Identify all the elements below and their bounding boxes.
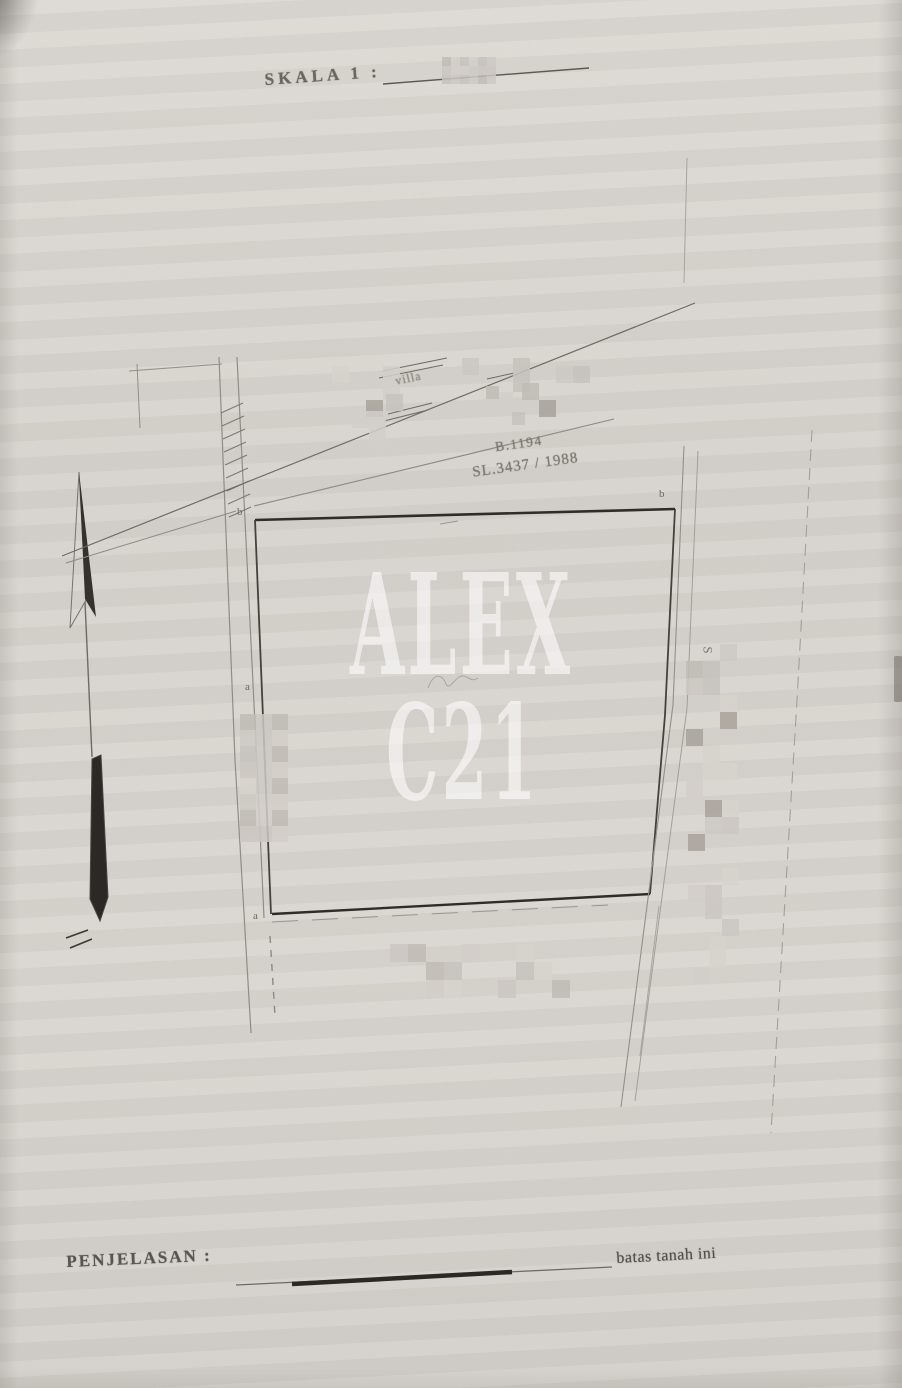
side-mark-right: S (700, 646, 716, 653)
faint-handwriting (428, 676, 478, 688)
corner-mark-top-left: b (237, 506, 243, 518)
legend-line-symbol (236, 1267, 612, 1285)
left-road-lines (219, 357, 275, 1033)
survey-linework (0, 0, 902, 1388)
parcel-boundary (255, 509, 675, 922)
north-arrow-icon (66, 472, 108, 948)
scale-underline (383, 68, 589, 84)
misc-linework (129, 158, 902, 1133)
corner-mark-bottom-left: a (253, 910, 258, 922)
edge-smudge (894, 656, 902, 702)
corner-mark-mid-left: a (245, 681, 250, 693)
road-hatch-marks (221, 403, 251, 517)
road-edge-marks (379, 358, 514, 421)
corner-mark-top-right: b (659, 488, 665, 500)
diagonal-road-lines (62, 303, 695, 563)
scanned-document-page: SKALA 1 : B.1194 SL.3437 / 1988 villa b … (0, 0, 902, 1388)
